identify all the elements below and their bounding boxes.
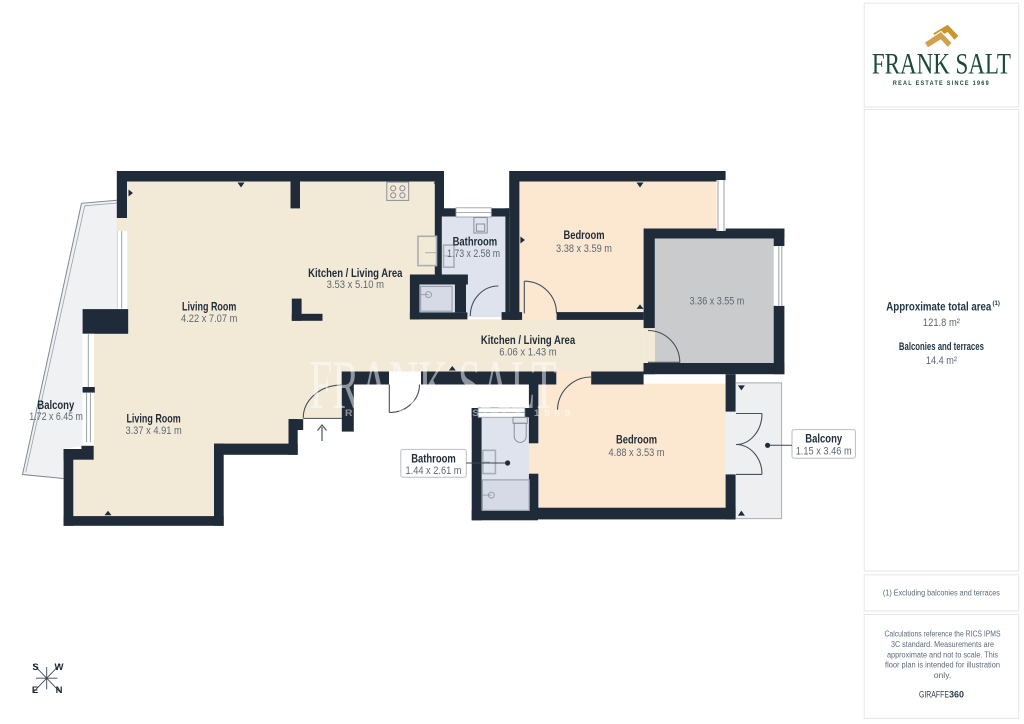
svg-text:Living Room: Living Room [126,413,180,426]
svg-text:Bathroom: Bathroom [453,236,498,249]
svg-text:Balconies and terraces: Balconies and terraces [899,341,984,353]
svg-text:(1): (1) [993,301,1000,307]
svg-text:3.38 x 3.59 m: 3.38 x 3.59 m [556,243,612,255]
svg-text:REAL ESTATE SINCE 1969: REAL ESTATE SINCE 1969 [893,80,990,87]
svg-text:3.53 x 5.10 m: 3.53 x 5.10 m [327,279,385,291]
svg-text:Balcony: Balcony [37,399,74,412]
svg-text:Bedroom: Bedroom [564,229,605,242]
svg-text:Living Room: Living Room [182,300,236,313]
svg-text:Kitchen / Living Area: Kitchen / Living Area [481,334,576,347]
svg-text:1.73 x 2.58 m: 1.73 x 2.58 m [447,248,500,260]
svg-text:(1) Excluding balconies and te: (1) Excluding balconies and terraces [883,588,1000,598]
svg-text:14.4 m²: 14.4 m² [926,355,957,367]
svg-text:S: S [32,662,38,673]
svg-text:GIRAFFE: GIRAFFE [919,689,949,700]
svg-text:REAL ESTATE SINCE 1969: REAL ESTATE SINCE 1969 [345,408,575,418]
svg-text:Kitchen / Living Area: Kitchen / Living Area [308,267,403,280]
svg-text:Approximate total area: Approximate total area [886,300,991,314]
svg-text:FRANK SALT: FRANK SALT [872,48,1011,81]
svg-text:W: W [55,662,64,673]
svg-text:Balcony: Balcony [805,433,842,446]
svg-text:1.44 x 2.61 m: 1.44 x 2.61 m [406,465,462,477]
svg-text:only.: only. [934,670,952,680]
svg-text:Bathroom: Bathroom [411,452,456,465]
svg-text:Calculations reference the RIC: Calculations reference the RICS IPMS [885,629,1001,639]
svg-text:360: 360 [949,689,964,700]
svg-text:1.15 x 3.46 m: 1.15 x 3.46 m [796,445,852,457]
svg-text:3.36 x 3.55 m: 3.36 x 3.55 m [690,296,745,308]
svg-text:E: E [32,685,38,696]
svg-text:floor plan is intended for ill: floor plan is intended for illustration [885,660,1000,670]
svg-text:3.37 x 4.91 m: 3.37 x 4.91 m [125,425,181,437]
svg-text:approximate and not to scale.: approximate and not to scale. This [887,649,998,659]
svg-text:121.8 m²: 121.8 m² [923,317,960,329]
svg-text:3C standard. Measurements are: 3C standard. Measurements are [891,639,994,649]
svg-text:Bedroom: Bedroom [616,433,657,446]
svg-text:1.72 x 6.45 m: 1.72 x 6.45 m [29,411,83,423]
svg-text:4.22 x 7.07 m: 4.22 x 7.07 m [181,313,237,325]
svg-text:4.88 x 3.53 m: 4.88 x 3.53 m [609,447,665,459]
svg-text:N: N [56,685,63,696]
